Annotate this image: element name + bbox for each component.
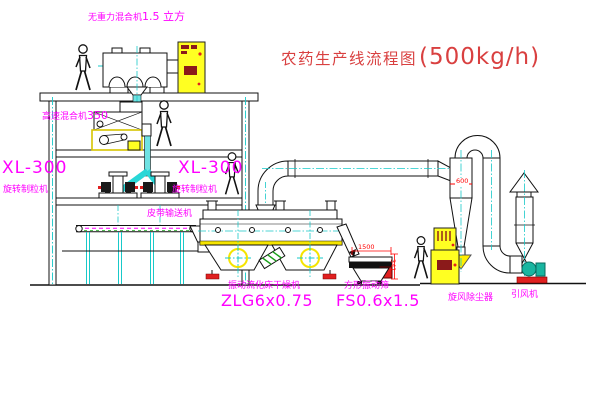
granulator-left-unit	[98, 172, 138, 198]
process-flow-drawing: 农药生产线流程图 (500kg/h) 无重力混合机1.5 立方 高速混合机350…	[0, 0, 600, 403]
label-granulator-mid-model: XL-300	[178, 160, 243, 177]
label-granulator-left-name: 旋转制粒机	[3, 186, 48, 195]
control-cabinet-ground	[431, 228, 459, 284]
worker-figure-floor3	[157, 101, 171, 146]
label-belt-conveyor: 皮带输送机	[147, 210, 192, 219]
dimension-screen-length: 1500	[358, 244, 375, 251]
label-screen-name: 方形振动筛	[344, 282, 389, 291]
induced-draft-fan-unit	[510, 256, 547, 283]
label-granulator-left-model: XL-300	[2, 160, 67, 177]
label-fan: 引风机	[511, 291, 538, 300]
worker-figure-ground	[415, 237, 428, 279]
belt-conveyor-unit	[62, 226, 214, 285]
label-high-speed-mixer: 高速混合机350	[42, 110, 108, 122]
dimension-screen-height: 341	[390, 259, 397, 271]
label-granulator-mid-name: 旋转制粒机	[172, 186, 217, 195]
ground-line	[30, 284, 586, 286]
fluid-bed-dryer-unit	[198, 201, 344, 279]
title-capacity: (500kg/h)	[419, 44, 540, 70]
drawing-title: 农药生产线流程图 (500kg/h)	[281, 44, 540, 70]
label-screen-model: FS0.6x1.5	[336, 293, 420, 309]
label-cyclone: 旋风除尘器	[448, 294, 493, 303]
title-text: 农药生产线流程图	[281, 47, 417, 69]
label-gravity-mixer: 无重力混合机1.5 立方	[88, 11, 185, 23]
dimension-cyclone-diameter: 600	[455, 178, 469, 185]
vibrating-screen-unit	[337, 224, 398, 284]
label-dryer-model: ZLG6x0.75	[221, 293, 313, 309]
worker-figure-roof	[76, 45, 90, 90]
control-cabinet-roof	[178, 42, 205, 93]
label-dryer-name: 振动流化床干燥机	[228, 282, 300, 291]
